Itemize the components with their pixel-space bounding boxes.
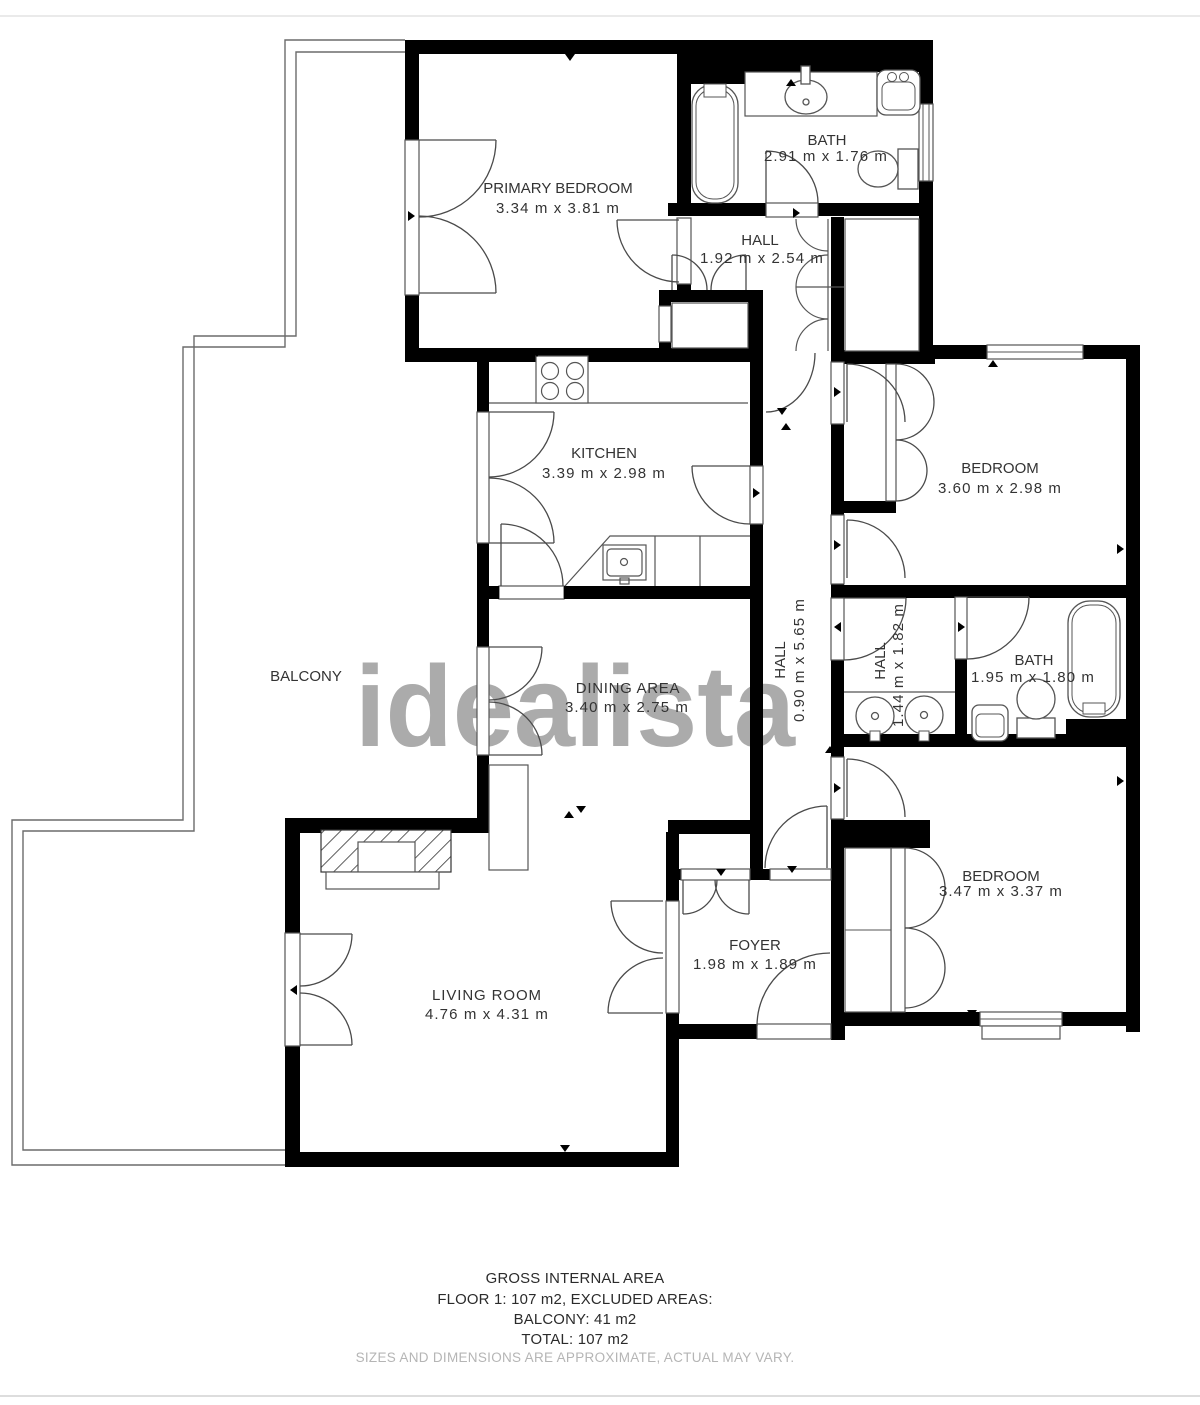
svg-text:HALL: HALL (872, 642, 889, 680)
svg-text:1.44 m x 1.82 m: 1.44 m x 1.82 m (890, 603, 907, 727)
svg-text:SIZES AND DIMENSIONS ARE APPRO: SIZES AND DIMENSIONS ARE APPROXIMATE, AC… (356, 1350, 795, 1365)
svg-text:PRIMARY BEDROOM: PRIMARY BEDROOM (483, 180, 632, 197)
svg-text:LIVING ROOM: LIVING ROOM (432, 987, 542, 1004)
svg-text:0.90 m x 5.65 m: 0.90 m x 5.65 m (791, 598, 808, 722)
svg-text:DINING AREA: DINING AREA (576, 680, 680, 697)
svg-text:KITCHEN: KITCHEN (571, 445, 637, 462)
svg-text:HALL: HALL (741, 232, 779, 249)
svg-text:BATH: BATH (808, 132, 847, 149)
svg-text:1.98 m x 1.89 m: 1.98 m x 1.89 m (693, 956, 817, 973)
svg-text:3.34 m x 3.81 m: 3.34 m x 3.81 m (496, 200, 620, 217)
svg-text:1.92 m x 2.54 m: 1.92 m x 2.54 m (700, 250, 824, 267)
svg-text:FLOOR 1: 107 m2, EXCLUDED AREA: FLOOR 1: 107 m2, EXCLUDED AREAS: (437, 1292, 712, 1308)
svg-text:BEDROOM: BEDROOM (961, 460, 1039, 477)
svg-text:TOTAL: 107 m2: TOTAL: 107 m2 (521, 1332, 628, 1348)
svg-text:2.91 m x 1.76 m: 2.91 m x 1.76 m (764, 148, 888, 165)
svg-text:3.40 m x 2.75 m: 3.40 m x 2.75 m (565, 699, 689, 716)
svg-text:BALCONY: BALCONY (270, 668, 342, 685)
svg-text:FOYER: FOYER (729, 937, 781, 954)
svg-text:BALCONY: 41 m2: BALCONY: 41 m2 (514, 1312, 637, 1328)
svg-text:GROSS INTERNAL AREA: GROSS INTERNAL AREA (486, 1271, 665, 1287)
svg-text:HALL: HALL (772, 641, 789, 679)
svg-text:3.39 m x 2.98 m: 3.39 m x 2.98 m (542, 465, 666, 482)
svg-text:1.95 m x 1.80 m: 1.95 m x 1.80 m (971, 669, 1095, 686)
svg-text:4.76 m x 4.31 m: 4.76 m x 4.31 m (425, 1006, 549, 1023)
svg-text:3.47 m x 3.37 m: 3.47 m x 3.37 m (939, 883, 1063, 900)
svg-text:3.60 m x 2.98 m: 3.60 m x 2.98 m (938, 480, 1062, 497)
svg-text:BATH: BATH (1015, 652, 1054, 669)
